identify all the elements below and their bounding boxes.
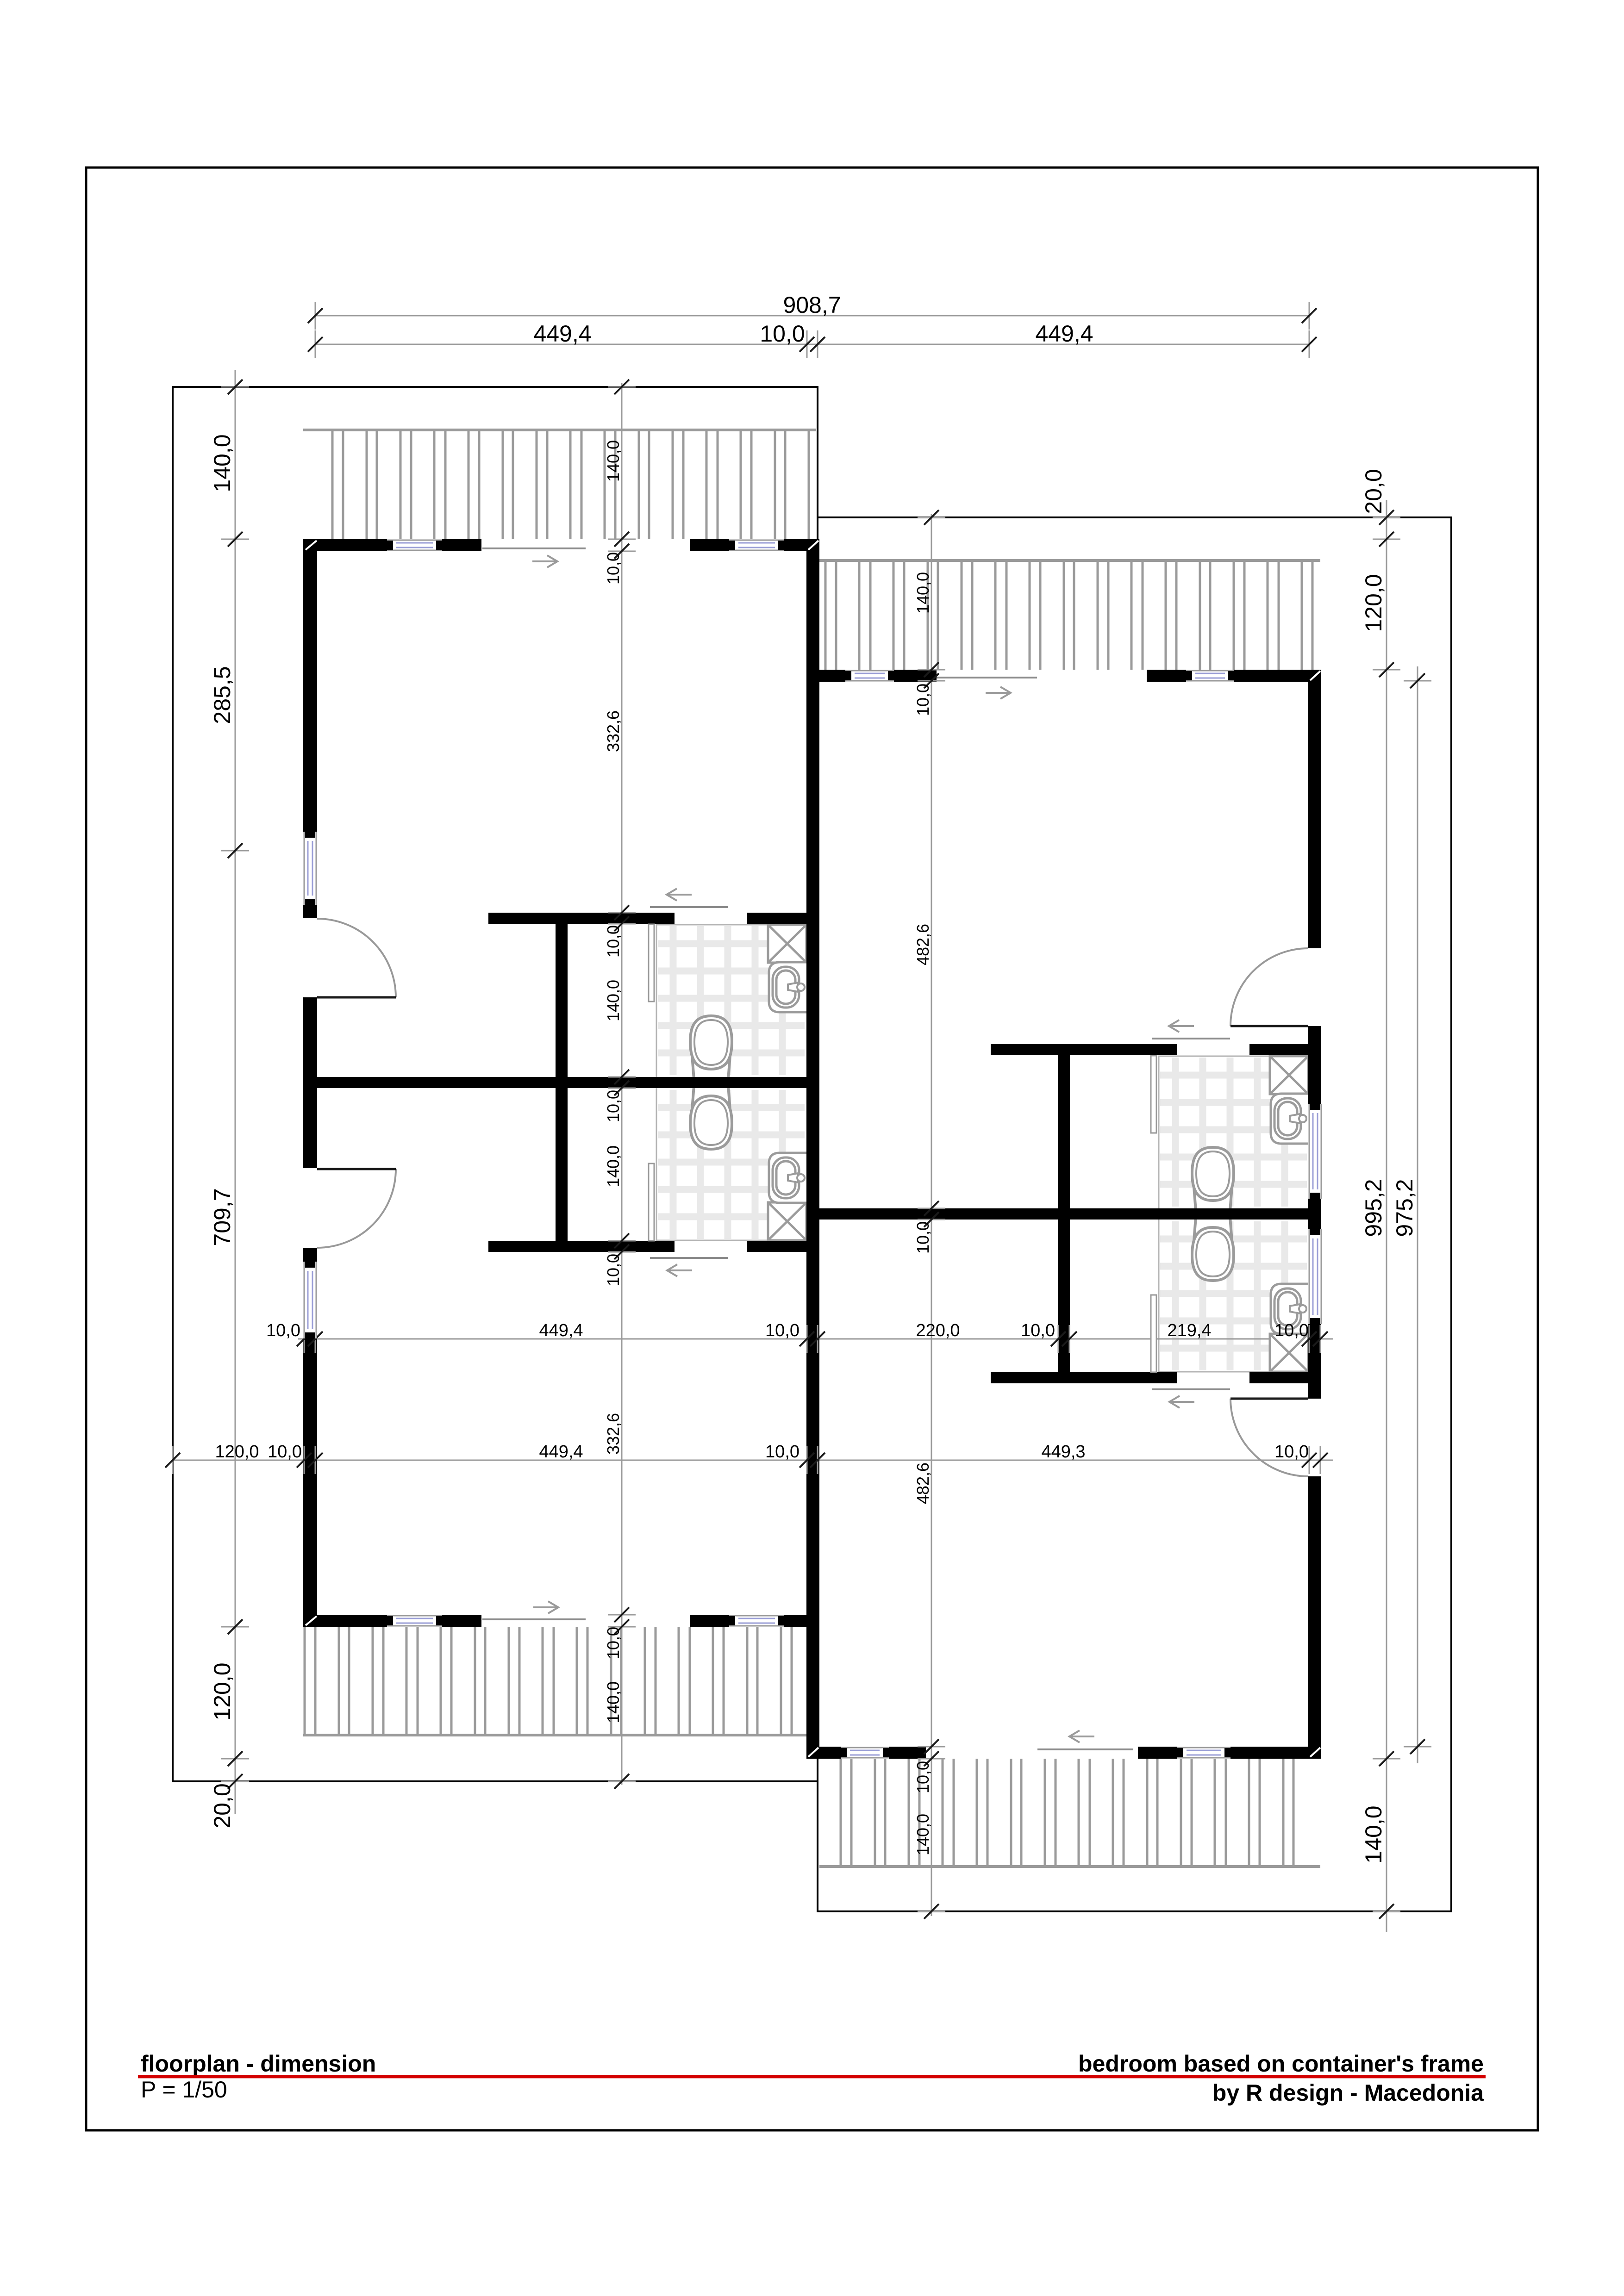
svg-text:10,0: 10,0 bbox=[913, 1221, 932, 1254]
svg-text:140,0: 140,0 bbox=[604, 440, 623, 482]
svg-text:10,0: 10,0 bbox=[604, 1090, 623, 1122]
svg-text:709,7: 709,7 bbox=[209, 1188, 235, 1246]
svg-text:140,0: 140,0 bbox=[913, 1814, 932, 1855]
svg-text:975,2: 975,2 bbox=[1392, 1179, 1418, 1237]
svg-text:140,0: 140,0 bbox=[604, 1145, 623, 1187]
svg-text:10,0: 10,0 bbox=[268, 1442, 302, 1462]
svg-text:10,0: 10,0 bbox=[765, 1321, 800, 1340]
svg-text:908,7: 908,7 bbox=[783, 292, 841, 318]
svg-text:482,6: 482,6 bbox=[913, 1462, 932, 1504]
svg-text:by R design - Macedonia: by R design - Macedonia bbox=[1212, 2080, 1484, 2106]
svg-text:10,0: 10,0 bbox=[760, 321, 805, 347]
svg-text:482,6: 482,6 bbox=[913, 924, 932, 965]
svg-text:120,0: 120,0 bbox=[215, 1442, 259, 1462]
svg-text:20,0: 20,0 bbox=[1361, 469, 1387, 514]
svg-text:10,0: 10,0 bbox=[1274, 1321, 1309, 1340]
svg-text:140,0: 140,0 bbox=[209, 434, 235, 492]
svg-text:10,0: 10,0 bbox=[1021, 1321, 1055, 1340]
svg-text:10,0: 10,0 bbox=[604, 1254, 623, 1286]
svg-text:10,0: 10,0 bbox=[1274, 1442, 1309, 1462]
svg-text:10,0: 10,0 bbox=[913, 684, 932, 716]
svg-text:449,4: 449,4 bbox=[1035, 321, 1093, 347]
svg-text:140,0: 140,0 bbox=[604, 1681, 623, 1723]
svg-text:bedroom based on container's f: bedroom based on container's frame bbox=[1078, 2051, 1484, 2077]
svg-text:219,4: 219,4 bbox=[1167, 1321, 1211, 1340]
svg-text:P = 1/50: P = 1/50 bbox=[141, 2077, 227, 2103]
svg-text:10,0: 10,0 bbox=[604, 925, 623, 958]
svg-text:140,0: 140,0 bbox=[913, 572, 932, 614]
svg-text:995,2: 995,2 bbox=[1361, 1179, 1387, 1237]
svg-text:285,5: 285,5 bbox=[209, 666, 235, 724]
svg-text:10,0: 10,0 bbox=[266, 1321, 300, 1340]
svg-text:10,0: 10,0 bbox=[604, 1627, 623, 1659]
svg-text:20,0: 20,0 bbox=[209, 1783, 235, 1828]
svg-text:449,4: 449,4 bbox=[533, 321, 591, 347]
svg-text:140,0: 140,0 bbox=[604, 980, 623, 1021]
svg-text:10,0: 10,0 bbox=[913, 1761, 932, 1793]
svg-text:220,0: 220,0 bbox=[916, 1321, 960, 1340]
svg-text:332,6: 332,6 bbox=[604, 710, 623, 752]
svg-text:140,0: 140,0 bbox=[1361, 1805, 1387, 1863]
svg-text:449,3: 449,3 bbox=[1041, 1442, 1085, 1462]
svg-text:332,6: 332,6 bbox=[604, 1413, 623, 1455]
svg-text:120,0: 120,0 bbox=[209, 1662, 235, 1720]
svg-text:449,4: 449,4 bbox=[539, 1442, 583, 1462]
svg-text:449,4: 449,4 bbox=[539, 1321, 583, 1340]
svg-text:10,0: 10,0 bbox=[765, 1442, 800, 1462]
svg-text:10,0: 10,0 bbox=[604, 552, 623, 585]
svg-text:120,0: 120,0 bbox=[1361, 574, 1387, 632]
svg-text:floorplan - dimension: floorplan - dimension bbox=[141, 2051, 376, 2077]
